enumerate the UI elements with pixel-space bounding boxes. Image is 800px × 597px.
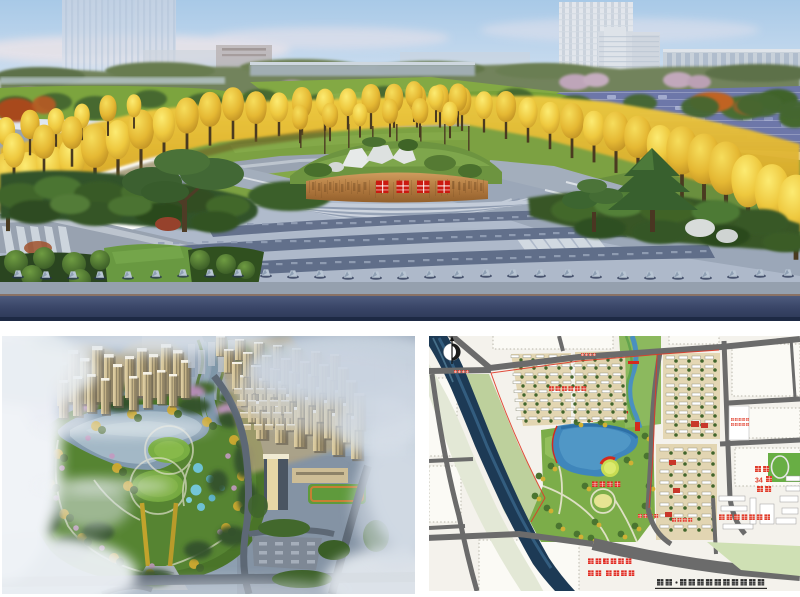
svg-text:34: 34	[755, 478, 763, 485]
